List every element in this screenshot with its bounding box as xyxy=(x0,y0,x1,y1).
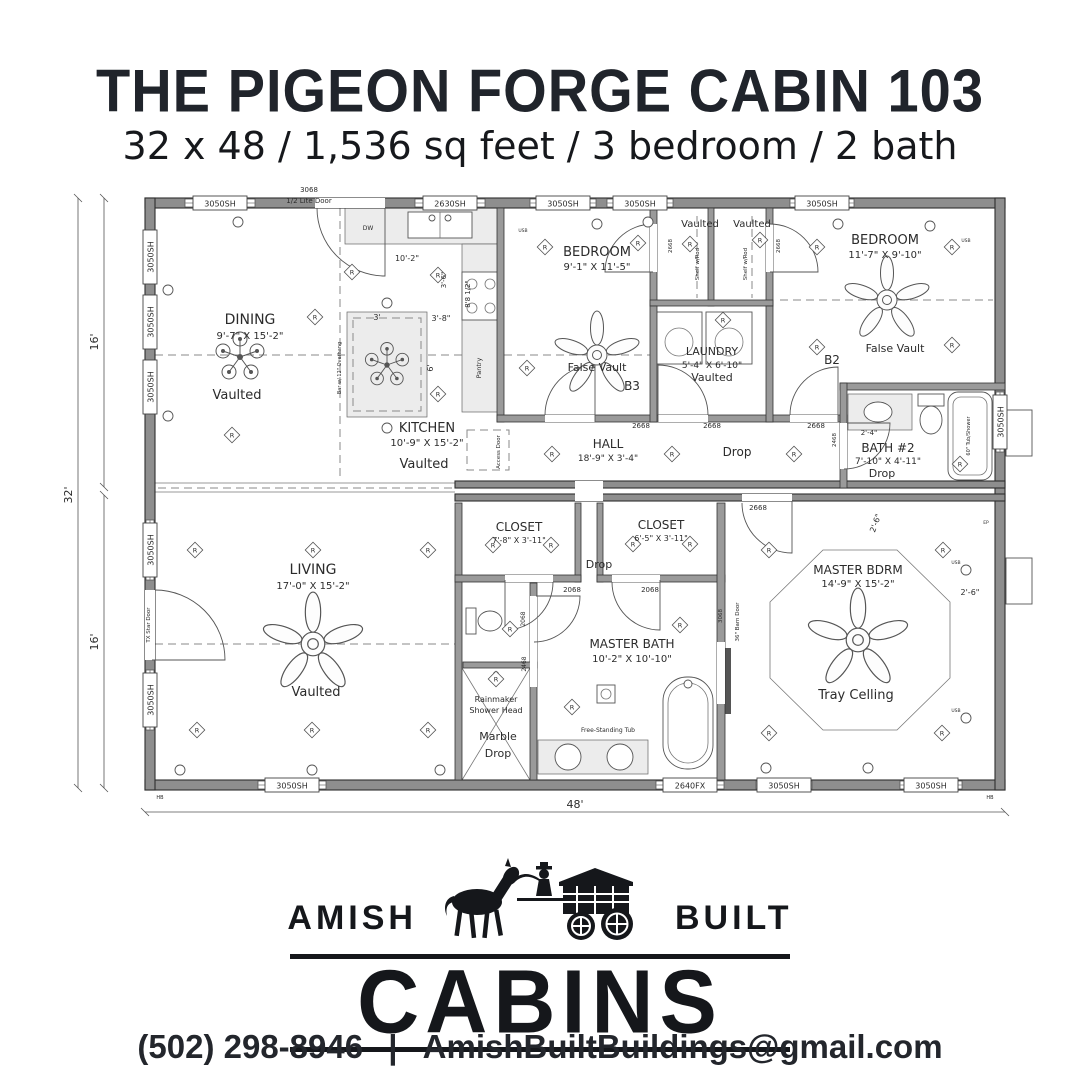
exterior-panel xyxy=(1006,410,1032,456)
wall-light xyxy=(925,221,935,231)
plan-label: 2468 xyxy=(521,656,528,671)
window: 2630SH xyxy=(415,196,485,210)
plan-label: 14'-9" X 15'-2" xyxy=(821,579,894,590)
window-label: 3050SH xyxy=(915,782,946,791)
bath2-sink xyxy=(864,402,892,422)
plan-label: 10'-2" xyxy=(395,254,419,263)
recessed-light-label: R xyxy=(311,547,316,555)
interior-wall xyxy=(717,503,725,780)
window-label: 2640FX xyxy=(675,782,706,791)
recessed-light-label: R xyxy=(940,730,945,738)
plan-label: 3' xyxy=(373,313,380,322)
plan-label: TX Star Door xyxy=(146,607,152,644)
door-swing xyxy=(534,596,580,642)
recessed-light-label: R xyxy=(436,391,441,399)
plan-label: 11'-7" X 9'-10" xyxy=(848,250,921,261)
plan-label: Shower Head xyxy=(469,706,522,715)
plan-label: Access Door xyxy=(496,434,502,469)
logo-word-amish: AMISH xyxy=(287,899,417,938)
window-label: 3050SH xyxy=(147,534,156,565)
door-swing xyxy=(790,367,838,422)
interior-wall xyxy=(840,383,1005,390)
window-label: 3050SH xyxy=(997,406,1006,437)
recessed-light-label: R xyxy=(688,241,693,249)
wall-light xyxy=(382,423,392,433)
plan-label: 8'8 1/2" xyxy=(464,280,472,308)
plan-label: 9'-7" X 15'-2" xyxy=(217,331,284,342)
plan-label: 2668 xyxy=(807,422,825,430)
ceiling-fan xyxy=(806,588,909,686)
exterior-wall xyxy=(455,481,1005,488)
plan-label: 6' xyxy=(426,364,435,371)
recessed-light-label: R xyxy=(815,344,820,352)
plan-label: Marble xyxy=(479,730,517,743)
plan-label: 5'-4" X 6'-10" xyxy=(682,361,742,371)
recessed-light-label: R xyxy=(543,244,548,252)
wall-light xyxy=(163,285,173,295)
door-opening xyxy=(717,642,725,704)
plan-label: 2'-6" xyxy=(868,513,883,534)
plan-label: 1/2 Lite Door xyxy=(286,197,332,205)
wall-light xyxy=(307,765,317,775)
kitchen-counter-east xyxy=(462,244,500,412)
wall-light xyxy=(643,217,653,227)
faucet xyxy=(445,215,451,221)
plan-label: MASTER BDRM xyxy=(813,563,902,577)
plan-label: 36" Barn Door xyxy=(735,602,741,642)
plan-label: MASTER BATH xyxy=(589,637,674,651)
window-label: 3050SH xyxy=(768,782,799,791)
door-opening xyxy=(612,575,660,582)
exterior-wall xyxy=(455,494,1005,501)
plan-label: HB xyxy=(986,795,994,801)
wall-light xyxy=(592,219,602,229)
plan-label: Drop xyxy=(586,558,612,571)
window-label: 3050SH xyxy=(547,200,578,209)
window-label: 3050SH xyxy=(276,782,307,791)
plan-label: Bar w/ 12" Overhang xyxy=(337,342,343,394)
plan-label: USB xyxy=(951,708,960,714)
window-label: 3050SH xyxy=(147,684,156,715)
door-opening xyxy=(840,423,847,469)
plan-label: 7'-8" X 3'-11" xyxy=(492,536,546,545)
plan-label: BATH #2 xyxy=(861,441,914,455)
recessed-light-label: R xyxy=(670,451,675,459)
plan-label: 3068 xyxy=(300,186,318,194)
recessed-light-label: R xyxy=(950,342,955,350)
wall-light xyxy=(761,763,771,773)
wall-light xyxy=(435,765,445,775)
door-opening xyxy=(742,494,792,501)
interior-wall xyxy=(650,306,657,422)
ceiling-fan xyxy=(261,592,364,690)
barn-door-panel xyxy=(725,648,731,714)
wall-light xyxy=(382,298,392,308)
recessed-light-label: R xyxy=(570,704,575,712)
interior-wall xyxy=(575,503,581,582)
plan-label: Vaulted xyxy=(399,457,448,472)
recessed-light-label: R xyxy=(549,542,554,550)
window: 3050SH xyxy=(756,778,812,792)
interior-wall xyxy=(766,306,773,422)
recessed-light-label: R xyxy=(426,727,431,735)
contact-email: AmishBuiltBuildings@gmail.com xyxy=(423,1028,943,1065)
plan-label: Shelf w/Rod xyxy=(695,248,701,280)
plan-label: Vaulted xyxy=(691,371,733,384)
plan-label: 2668 xyxy=(703,422,721,430)
exterior-panel xyxy=(1006,558,1032,604)
window-label: 3050SH xyxy=(806,200,837,209)
door-swing xyxy=(505,580,553,630)
window: 3050SH xyxy=(607,196,673,210)
plan-label: DW xyxy=(363,225,374,232)
plan-label: BEDROOM xyxy=(563,245,631,260)
window: 3050SH xyxy=(143,230,157,284)
plan-label: 2'-6" xyxy=(961,588,980,597)
window: 3050SH xyxy=(530,196,596,210)
plan-label: 3068 xyxy=(718,609,724,623)
plan-label: EP xyxy=(983,520,989,526)
plan-label: B2 xyxy=(824,353,840,367)
plan-label: False Vault xyxy=(568,361,628,374)
contact-line: (502) 298-8946 | AmishBuiltBuildings@gma… xyxy=(0,1028,1080,1066)
plan-label: 16' xyxy=(88,333,101,350)
plan-label: 48' xyxy=(566,798,583,811)
ceiling-fan xyxy=(843,256,931,339)
window: 3050SH xyxy=(143,670,157,730)
door-opening xyxy=(530,642,537,687)
window: 3050SH xyxy=(143,360,157,414)
plan-label: 2668 xyxy=(632,422,650,430)
window: 2640FX xyxy=(656,778,724,792)
window: 3050SH xyxy=(143,295,157,349)
recessed-light-label: R xyxy=(525,365,530,373)
door-opening xyxy=(766,224,773,272)
door-opening xyxy=(658,415,708,422)
recessed-light-label: R xyxy=(815,244,820,252)
recessed-light-label: R xyxy=(230,432,235,440)
plan-label: 3'-8" xyxy=(432,314,451,323)
window: 3050SH xyxy=(143,520,157,580)
wall-light xyxy=(961,713,971,723)
plan-label: Rainmaker xyxy=(475,695,519,704)
plan-label: BEDROOM xyxy=(851,233,919,248)
plan-label: 2668 xyxy=(749,504,767,512)
plan-label: Vaulted xyxy=(681,219,719,230)
window-label: 3050SH xyxy=(147,241,156,272)
plan-label: 2'-4" xyxy=(861,429,878,437)
recessed-light-label: R xyxy=(721,317,726,325)
plan-label: LAUNDRY xyxy=(686,345,739,358)
plan-label: Vaulted xyxy=(733,219,771,230)
plan-label: 9'-1" X 11'-5" xyxy=(564,262,631,273)
recessed-light-label: R xyxy=(195,727,200,735)
plan-label: Tray Celling xyxy=(817,688,894,703)
door-opening xyxy=(575,481,603,501)
plan-label: 60" Tub/Shower xyxy=(966,415,972,455)
plan-label: USB xyxy=(951,560,960,566)
plan-label: LIVING xyxy=(290,562,337,578)
toilet-tank xyxy=(466,608,476,634)
plan-label: 32' xyxy=(62,486,75,503)
company-logo: AMISH xyxy=(0,852,1080,1052)
page: { "header": { "title": "THE PIGEON FORGE… xyxy=(0,0,1080,1080)
recessed-light-label: R xyxy=(508,626,513,634)
page-title: THE PIGEON FORGE CABIN 103 xyxy=(0,55,1080,125)
recessed-light-label: R xyxy=(758,237,763,245)
window: 3050SH xyxy=(900,778,962,792)
plan-label: 2068 xyxy=(563,586,581,594)
page-subtitle: 32 x 48 / 1,536 sq feet / 3 bedroom / 2 … xyxy=(0,124,1080,168)
recessed-light-label: R xyxy=(310,727,315,735)
recessed-light-label: R xyxy=(678,622,683,630)
contact-phone: (502) 298-8946 xyxy=(137,1028,363,1065)
plan-label: 2068 xyxy=(641,586,659,594)
freestanding-tub xyxy=(663,677,713,769)
wall-light xyxy=(863,763,873,773)
recessed-light-label: R xyxy=(550,451,555,459)
recessed-light-label: R xyxy=(494,676,499,684)
plan-label: HALL xyxy=(593,437,624,451)
window: 3050SH xyxy=(258,778,326,792)
bath2-toilet-tank xyxy=(918,394,944,406)
plan-label: Shelf w/Rod xyxy=(743,248,749,280)
window-label: 3050SH xyxy=(204,200,235,209)
toilet xyxy=(478,611,502,631)
plan-label: DINING xyxy=(225,312,276,328)
plan-label: B3 xyxy=(624,379,640,393)
interior-wall xyxy=(497,208,504,422)
plan-label: 10'-2" X 10'-10" xyxy=(592,654,672,665)
vanity-sink xyxy=(607,744,633,770)
plan-label: 18'-9" X 3'-4" xyxy=(578,454,638,464)
recessed-light-label: R xyxy=(767,730,772,738)
wall-light xyxy=(163,411,173,421)
plan-label: USB xyxy=(961,238,970,244)
recessed-light-label: R xyxy=(792,451,797,459)
wall-light xyxy=(175,765,185,775)
plan-label: Drop xyxy=(723,445,752,459)
recessed-light-label: R xyxy=(636,240,641,248)
plan-label: 2068 xyxy=(520,611,527,626)
bath2-toilet xyxy=(920,406,942,434)
thermostat xyxy=(597,685,615,703)
recessed-light-label: R xyxy=(941,547,946,555)
plan-label: 2468 xyxy=(832,433,838,447)
window-label: 3050SH xyxy=(147,306,156,337)
plan-label: Pantry xyxy=(475,357,483,378)
plan-label: 2668 xyxy=(668,239,674,253)
plan-label: Drop xyxy=(485,747,511,760)
vanity-sink xyxy=(555,744,581,770)
window: 3050SH xyxy=(993,392,1007,452)
interior-wall xyxy=(650,300,773,306)
plan-label: 16' xyxy=(88,633,101,650)
logo-word-built: BUILT xyxy=(675,899,793,938)
door-opening xyxy=(505,575,553,582)
tub-faucet xyxy=(684,680,692,688)
plan-label: CLOSET xyxy=(638,518,685,532)
interior-wall xyxy=(455,503,462,780)
plan-label: 17'-0" X 15'-2" xyxy=(276,581,349,592)
recessed-light-label: R xyxy=(950,244,955,252)
recessed-light-label: R xyxy=(350,269,355,277)
window-label: 3050SH xyxy=(624,200,655,209)
plan-label: CLOSET xyxy=(496,520,543,534)
recessed-light-label: R xyxy=(313,314,318,322)
door-swing xyxy=(152,590,225,660)
plan-label: Vaulted xyxy=(212,388,261,403)
plan-label: KITCHEN xyxy=(399,421,455,436)
recessed-light-label: R xyxy=(688,541,693,549)
plan-label: 2668 xyxy=(776,239,782,253)
attic-access xyxy=(467,430,509,470)
window-label: 3050SH xyxy=(147,371,156,402)
plan-label: False Vault xyxy=(866,342,926,355)
recessed-light-label: R xyxy=(426,547,431,555)
plan-label: 3'-6" xyxy=(440,272,448,289)
window: 3050SH xyxy=(790,196,854,210)
plan-label: 6'-5" X 3'-11" xyxy=(634,534,688,543)
window-label: 2630SH xyxy=(434,200,465,209)
faucet xyxy=(429,215,435,221)
plan-label: 7'-10" X 4'-11" xyxy=(855,457,921,467)
horse-wagon-icon xyxy=(431,852,661,952)
recessed-light-label: R xyxy=(767,547,772,555)
door-opening xyxy=(790,415,838,422)
plan-label: USB xyxy=(518,228,527,234)
plan-label: 10'-9" X 15'-2" xyxy=(390,438,463,449)
wall-light xyxy=(833,219,843,229)
recessed-light-label: R xyxy=(193,547,198,555)
plan-label: Vaulted xyxy=(291,685,340,700)
window: 3050SH xyxy=(185,196,255,210)
plan-label: Drop xyxy=(869,467,895,480)
wall-light xyxy=(233,217,243,227)
door-opening xyxy=(545,415,595,422)
door-opening xyxy=(650,224,657,272)
plan-label: HB xyxy=(156,795,164,801)
wall-light xyxy=(961,565,971,575)
floor-plan: 3050SH2630SH3050SH3050SH3050SH3050SH2640… xyxy=(0,172,1080,840)
plan-label: Free-Standing Tub xyxy=(581,727,635,734)
contact-divider: | xyxy=(388,1028,397,1065)
recessed-light-label: R xyxy=(958,461,963,469)
